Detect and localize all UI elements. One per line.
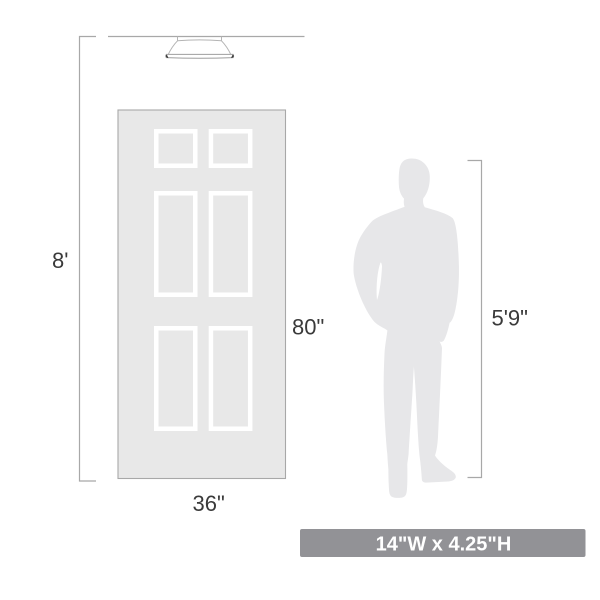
svg-text:14"W x 4.25"H: 14"W x 4.25"H xyxy=(376,534,512,556)
svg-text:80": 80" xyxy=(292,315,324,340)
svg-text:5'9": 5'9" xyxy=(492,306,528,331)
svg-text:36": 36" xyxy=(193,491,225,516)
svg-text:8': 8' xyxy=(52,248,68,273)
